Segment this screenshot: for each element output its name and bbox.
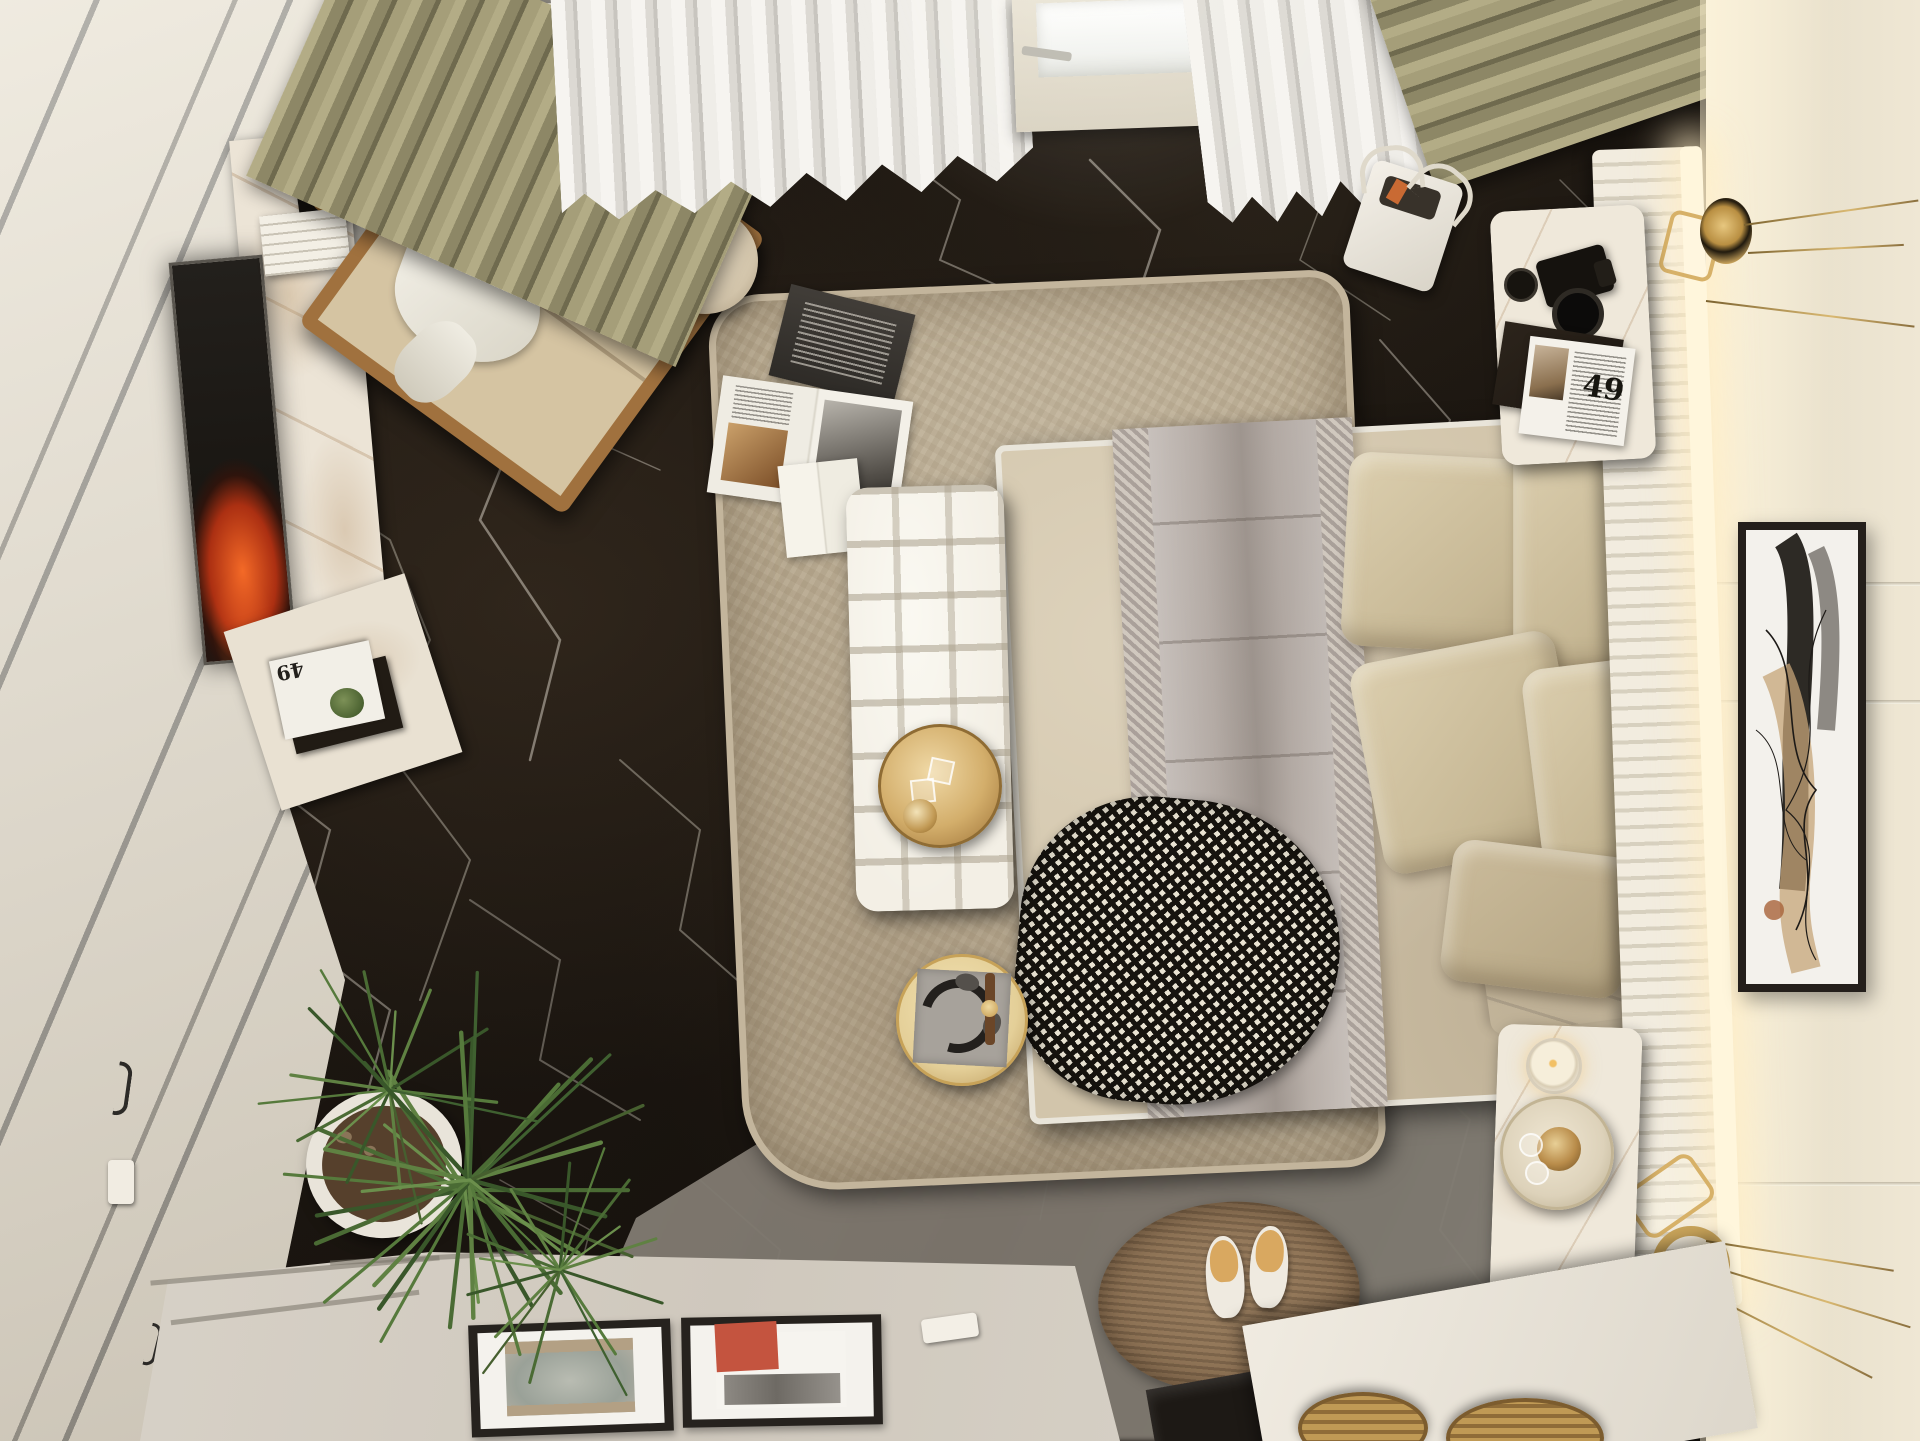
magazine: 49 xyxy=(1518,336,1635,446)
pillow xyxy=(1438,837,1636,1000)
tufted-bench xyxy=(845,484,1014,912)
glass xyxy=(1525,1161,1549,1185)
magazine-photo xyxy=(1529,345,1569,401)
wall-art-canvas xyxy=(1746,530,1858,984)
magazine-text xyxy=(731,385,793,427)
coffee-table xyxy=(896,954,1028,1086)
plant xyxy=(260,960,640,1340)
window-light-glow xyxy=(820,0,1380,240)
magazine-number: 49 xyxy=(1580,368,1627,409)
lens-cap xyxy=(1504,268,1538,302)
wall-art xyxy=(1738,522,1866,992)
framed-art-red xyxy=(681,1314,883,1427)
wrist-watch xyxy=(985,973,995,1045)
gold-bowl xyxy=(903,799,937,833)
slipper-insole xyxy=(1255,1229,1285,1272)
drinks-tray xyxy=(1500,1096,1614,1210)
gold-tray xyxy=(878,724,1002,848)
slipper-insole xyxy=(1208,1239,1239,1283)
succulent-decor xyxy=(330,688,364,718)
wall-art-abstract xyxy=(1746,530,1858,984)
watch-face xyxy=(981,1000,998,1017)
bedroom-topdown-render: 49 xyxy=(0,0,1920,1441)
bed xyxy=(995,411,1692,1125)
book-cover-text xyxy=(790,302,897,387)
art-rock-band xyxy=(724,1373,841,1405)
glass xyxy=(1519,1133,1543,1157)
art-red-square xyxy=(714,1321,778,1372)
console-magazine-number: 49 xyxy=(274,657,306,686)
sconce-lamp-disc xyxy=(1700,198,1752,264)
book-stack xyxy=(259,208,351,277)
candle xyxy=(1526,1038,1582,1094)
